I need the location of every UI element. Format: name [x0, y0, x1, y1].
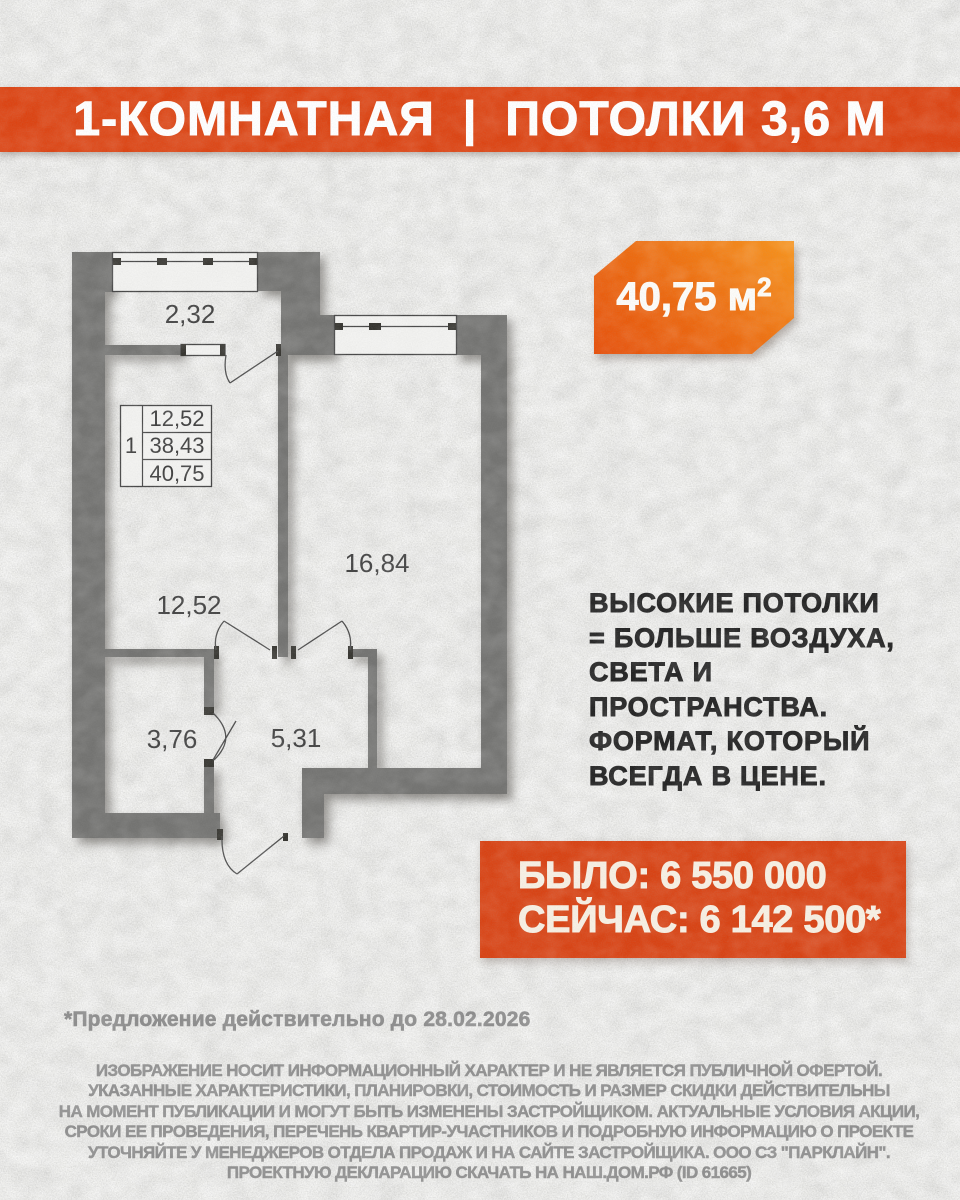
svg-text:2,32: 2,32: [165, 299, 216, 329]
svg-text:3,76: 3,76: [147, 724, 198, 754]
svg-text:38,43: 38,43: [149, 433, 204, 458]
svg-text:12,52: 12,52: [156, 590, 221, 620]
svg-text:16,84: 16,84: [344, 548, 409, 578]
svg-text:12,52: 12,52: [149, 406, 204, 431]
svg-text:1: 1: [125, 433, 137, 458]
svg-text:5,31: 5,31: [271, 723, 322, 753]
svg-text:40,75: 40,75: [149, 461, 204, 486]
